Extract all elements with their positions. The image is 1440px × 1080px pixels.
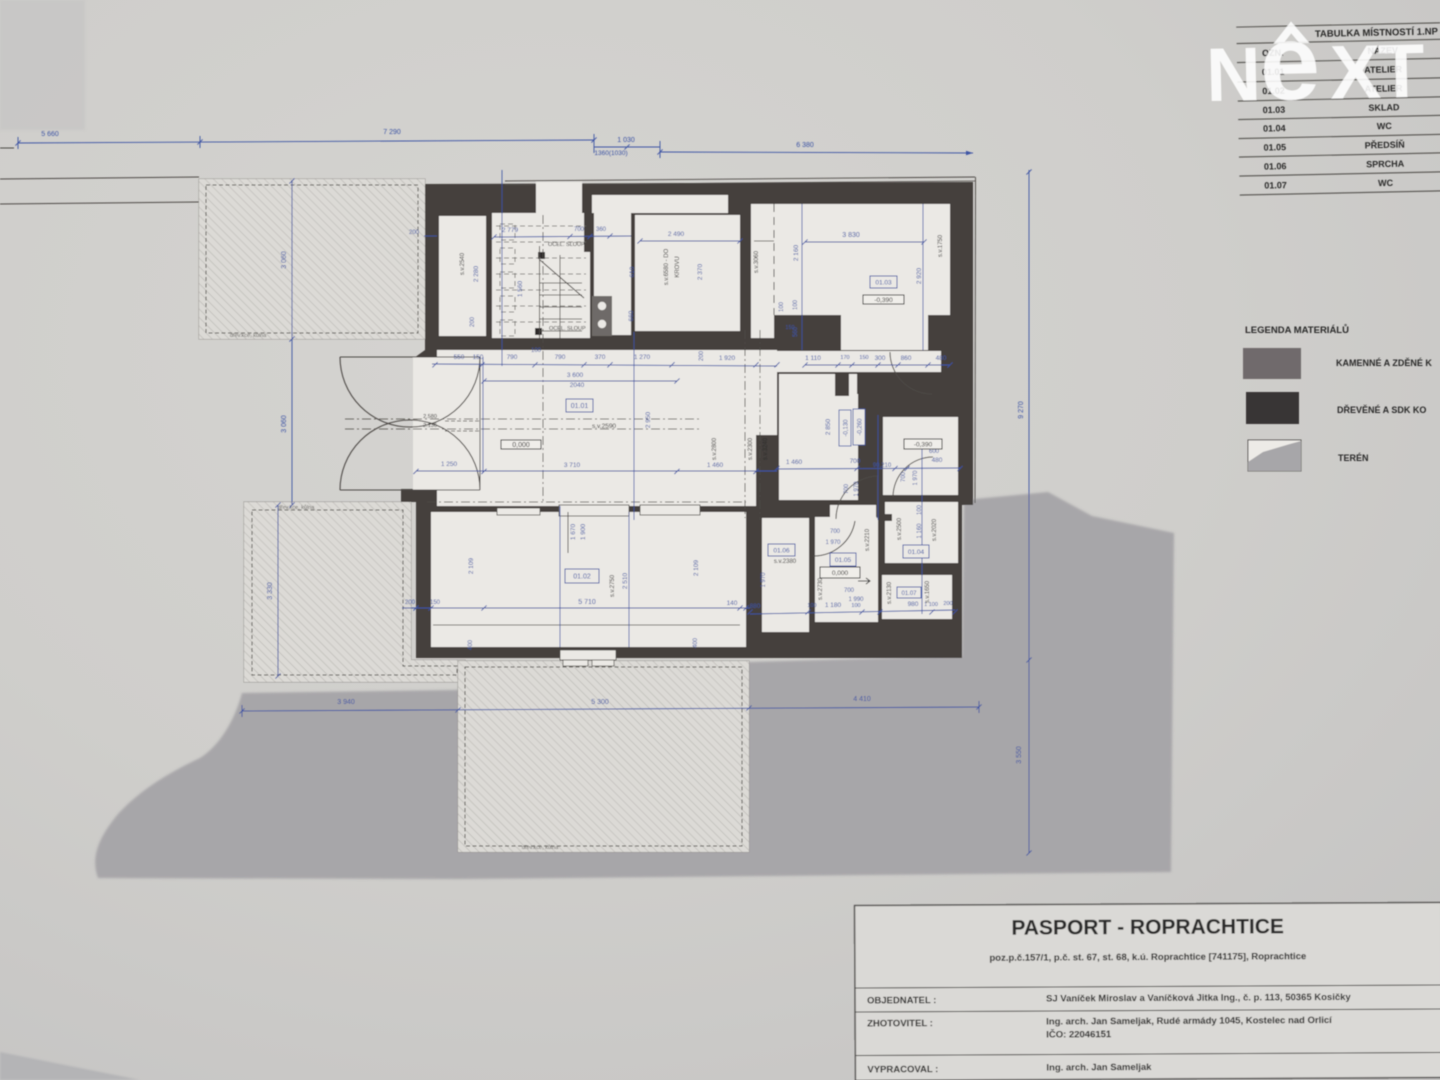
svg-text:OCEL. SLOUP: OCEL. SLOUP bbox=[548, 242, 585, 248]
svg-text:150: 150 bbox=[430, 600, 441, 606]
svg-text:s.v.2380: s.v.2380 bbox=[774, 559, 797, 565]
svg-text:1 670: 1 670 bbox=[570, 523, 577, 540]
svg-text:140: 140 bbox=[727, 600, 738, 607]
svg-text:poz.p.č.157/1, p.č. st. 67, st: poz.p.č.157/1, p.č. st. 67, st. 68, k.ú.… bbox=[989, 951, 1306, 964]
svg-text:s.v.2540: s.v.2540 bbox=[460, 252, 466, 275]
svg-text:100: 100 bbox=[851, 603, 860, 609]
svg-text:Ing. arch. Jan Sameljak, Rudé: Ing. arch. Jan Sameljak, Rudé armády 104… bbox=[1046, 1015, 1332, 1027]
svg-text:s.v.2750: s.v.2750 bbox=[610, 574, 616, 597]
svg-text:dřev.kce, kůlna: dřev.kce, kůlna bbox=[522, 844, 560, 851]
svg-text:860: 860 bbox=[901, 355, 912, 362]
svg-text:OCEL. SLOUP: OCEL. SLOUP bbox=[549, 326, 586, 332]
svg-text:2 280: 2 280 bbox=[473, 265, 480, 282]
svg-text:-0,130: -0,130 bbox=[844, 419, 850, 437]
svg-text:7 290: 7 290 bbox=[383, 129, 401, 136]
svg-text:01.02: 01.02 bbox=[573, 573, 591, 580]
svg-text:1 460: 1 460 bbox=[707, 462, 724, 469]
svg-text:480: 480 bbox=[936, 355, 947, 362]
svg-text:1 250: 1 250 bbox=[441, 461, 458, 468]
svg-text:3 550: 3 550 bbox=[1016, 746, 1023, 764]
svg-text:X: X bbox=[1329, 30, 1382, 116]
svg-text:150: 150 bbox=[785, 325, 794, 331]
svg-text:-0,390: -0,390 bbox=[914, 441, 933, 448]
svg-text:1360(1030): 1360(1030) bbox=[594, 150, 627, 157]
svg-text:1 970: 1 970 bbox=[913, 470, 919, 486]
svg-text:5 300: 5 300 bbox=[591, 699, 609, 706]
svg-text:s.v.6580 - DO: s.v.6580 - DO bbox=[664, 248, 670, 285]
svg-text:370: 370 bbox=[595, 354, 606, 361]
svg-text:VYPRACOVAL :: VYPRACOVAL : bbox=[867, 1064, 938, 1075]
svg-text:dřev.kce, kůlna: dřev.kce, kůlna bbox=[230, 332, 268, 339]
svg-text:01.07: 01.07 bbox=[1264, 180, 1287, 190]
svg-text:N: N bbox=[1205, 32, 1260, 118]
svg-text:200: 200 bbox=[409, 230, 420, 236]
svg-text:3 600: 3 600 bbox=[567, 372, 584, 379]
svg-text:s.v.2730: s.v.2730 bbox=[818, 577, 824, 600]
svg-text:170: 170 bbox=[840, 355, 849, 361]
svg-text:s.v.2210: s.v.2210 bbox=[865, 528, 871, 551]
svg-text:3 940: 3 940 bbox=[337, 699, 355, 706]
svg-text:660: 660 bbox=[628, 310, 635, 321]
svg-text:s.v.3060: s.v.3060 bbox=[754, 250, 760, 273]
svg-text:2 510: 2 510 bbox=[622, 572, 629, 589]
svg-text:700: 700 bbox=[844, 588, 855, 594]
svg-text:LEGENDA MATERIÁLŮ: LEGENDA MATERIÁLŮ bbox=[1245, 324, 1349, 336]
svg-text:SPRCHA: SPRCHA bbox=[1366, 159, 1405, 170]
svg-text:610: 610 bbox=[629, 266, 636, 277]
svg-text:-0,390: -0,390 bbox=[874, 297, 893, 304]
svg-text:150: 150 bbox=[859, 355, 868, 361]
svg-text:01.05: 01.05 bbox=[1263, 142, 1286, 152]
svg-text:2 850: 2 850 bbox=[825, 418, 832, 435]
svg-text:200: 200 bbox=[405, 600, 416, 606]
svg-text:2 370: 2 370 bbox=[697, 263, 704, 280]
svg-text:1 180: 1 180 bbox=[825, 602, 842, 609]
svg-text:1 970: 1 970 bbox=[854, 481, 860, 497]
svg-text:3 060: 3 060 bbox=[281, 415, 288, 433]
svg-text:400: 400 bbox=[693, 637, 699, 648]
svg-text:s.v.2800: s.v.2800 bbox=[712, 437, 718, 460]
svg-text:T: T bbox=[1377, 29, 1425, 115]
svg-text:100: 100 bbox=[793, 299, 799, 310]
svg-text:1 160: 1 160 bbox=[917, 523, 923, 539]
svg-text:3 330: 3 330 bbox=[267, 582, 274, 600]
svg-text:790: 790 bbox=[555, 354, 566, 361]
svg-text:2 160: 2 160 bbox=[793, 244, 800, 261]
svg-text:s.v.3240: s.v.3240 bbox=[763, 437, 769, 460]
svg-text:2 779: 2 779 bbox=[502, 227, 519, 234]
svg-text:6 380: 6 380 bbox=[796, 142, 814, 149]
svg-text:1 030: 1 030 bbox=[617, 137, 635, 144]
svg-text:ZHOTOVITEL :: ZHOTOVITEL : bbox=[867, 1018, 933, 1029]
svg-text:2040: 2040 bbox=[570, 382, 585, 389]
svg-text:s.v.2300: s.v.2300 bbox=[748, 437, 754, 460]
svg-text:700: 700 bbox=[844, 483, 850, 494]
svg-text:5 660: 5 660 bbox=[41, 131, 59, 138]
svg-text:IČO: 22046151: IČO: 22046151 bbox=[1046, 1028, 1112, 1040]
svg-text:0,000: 0,000 bbox=[832, 570, 849, 577]
svg-text:200: 200 bbox=[699, 350, 705, 361]
svg-text:01.01: 01.01 bbox=[571, 403, 589, 410]
svg-text:PŘEDSÍŇ: PŘEDSÍŇ bbox=[1365, 139, 1405, 151]
svg-text:3 060: 3 060 bbox=[281, 251, 288, 269]
svg-text:01.05: 01.05 bbox=[835, 557, 852, 564]
svg-text:2.136: 2.136 bbox=[423, 423, 437, 429]
svg-text:400: 400 bbox=[468, 639, 474, 650]
svg-text:OBJEDNATEL :: OBJEDNATEL : bbox=[867, 995, 936, 1006]
svg-text:200: 200 bbox=[943, 601, 952, 607]
svg-text:1 970: 1 970 bbox=[825, 540, 841, 546]
svg-text:01.03: 01.03 bbox=[875, 279, 892, 286]
svg-text:2 109: 2 109 bbox=[693, 559, 700, 576]
svg-text:150: 150 bbox=[473, 354, 484, 361]
svg-text:880: 880 bbox=[750, 603, 761, 610]
svg-text:SJ Vaníček Miroslav a Vaníčkov: SJ Vaníček Miroslav a Vaníčková Jitka In… bbox=[1046, 992, 1351, 1005]
svg-text:700: 700 bbox=[574, 227, 585, 233]
svg-text:1 920: 1 920 bbox=[719, 355, 736, 362]
svg-text:01.06: 01.06 bbox=[773, 547, 790, 554]
svg-text:01.04: 01.04 bbox=[908, 549, 925, 556]
svg-text:1 900: 1 900 bbox=[580, 523, 587, 540]
svg-text:e: e bbox=[1259, 1, 1322, 123]
svg-text:01.04: 01.04 bbox=[1263, 123, 1286, 133]
svg-text:WC: WC bbox=[1377, 121, 1393, 131]
svg-text:600: 600 bbox=[929, 449, 940, 455]
svg-text:1 970: 1 970 bbox=[761, 572, 767, 588]
svg-text:9 270: 9 270 bbox=[1018, 401, 1025, 419]
svg-text:s.v.2130: s.v.2130 bbox=[887, 581, 893, 604]
svg-text:s.v.2500: s.v.2500 bbox=[897, 517, 903, 540]
svg-text:1 270: 1 270 bbox=[634, 354, 651, 361]
svg-text:5 710: 5 710 bbox=[578, 599, 596, 606]
svg-text:KAMENNÉ A ZDĚNÉ K: KAMENNÉ A ZDĚNÉ K bbox=[1336, 357, 1432, 368]
svg-text:dřev.kce, kůlna: dřev.kce, kůlna bbox=[278, 504, 316, 511]
svg-text:1 990: 1 990 bbox=[848, 597, 864, 603]
svg-text:01.07: 01.07 bbox=[901, 591, 917, 597]
svg-text:DŘEVĚNÉ A SDK KO: DŘEVĚNÉ A SDK KO bbox=[1337, 404, 1426, 415]
svg-text:2 950: 2 950 bbox=[645, 411, 652, 428]
svg-text:KROVU: KROVU bbox=[675, 256, 681, 277]
svg-text:0,000: 0,000 bbox=[512, 442, 530, 449]
svg-text:-0,260: -0,260 bbox=[858, 418, 864, 436]
svg-text:90,210: 90,210 bbox=[873, 463, 892, 469]
svg-text:4 410: 4 410 bbox=[853, 696, 871, 703]
svg-text:2 490: 2 490 bbox=[668, 231, 685, 238]
svg-text:s.v.1650: s.v.1650 bbox=[925, 580, 931, 603]
svg-text:700: 700 bbox=[901, 471, 907, 482]
svg-text:2 109: 2 109 bbox=[468, 557, 475, 574]
svg-text:2 920: 2 920 bbox=[916, 267, 923, 284]
svg-text:980: 980 bbox=[908, 601, 919, 608]
svg-text:1 560: 1 560 bbox=[517, 280, 524, 297]
svg-text:01.06: 01.06 bbox=[1264, 161, 1287, 171]
svg-text:200: 200 bbox=[470, 316, 476, 327]
svg-text:2.580: 2.580 bbox=[423, 414, 437, 420]
svg-text:100: 100 bbox=[917, 504, 923, 515]
svg-text:300: 300 bbox=[875, 355, 886, 362]
svg-text:3 710: 3 710 bbox=[564, 462, 581, 469]
svg-text:480: 480 bbox=[932, 457, 943, 464]
svg-text:100: 100 bbox=[779, 301, 785, 312]
svg-text:s.v.1750: s.v.1750 bbox=[938, 234, 944, 257]
svg-text:3 830: 3 830 bbox=[842, 232, 860, 239]
svg-text:700: 700 bbox=[850, 458, 861, 465]
svg-text:550: 550 bbox=[454, 354, 465, 361]
svg-text:TERÉN: TERÉN bbox=[1338, 453, 1369, 463]
svg-text:Ing. arch. Jan Sameljak: Ing. arch. Jan Sameljak bbox=[1046, 1062, 1152, 1074]
svg-text:s.v.2020: s.v.2020 bbox=[932, 518, 938, 541]
svg-text:WC: WC bbox=[1378, 178, 1394, 188]
svg-text:PASPORT - ROPRACHTICE: PASPORT - ROPRACHTICE bbox=[1011, 915, 1284, 939]
svg-text:700: 700 bbox=[830, 529, 841, 535]
svg-text:100: 100 bbox=[531, 348, 542, 354]
svg-text:1 110: 1 110 bbox=[805, 355, 821, 362]
svg-text:s.v.2590: s.v.2590 bbox=[592, 423, 616, 430]
svg-text:1 460: 1 460 bbox=[786, 459, 803, 466]
svg-text:100: 100 bbox=[807, 603, 816, 609]
svg-text:790: 790 bbox=[507, 354, 518, 361]
svg-text:360: 360 bbox=[596, 227, 607, 233]
